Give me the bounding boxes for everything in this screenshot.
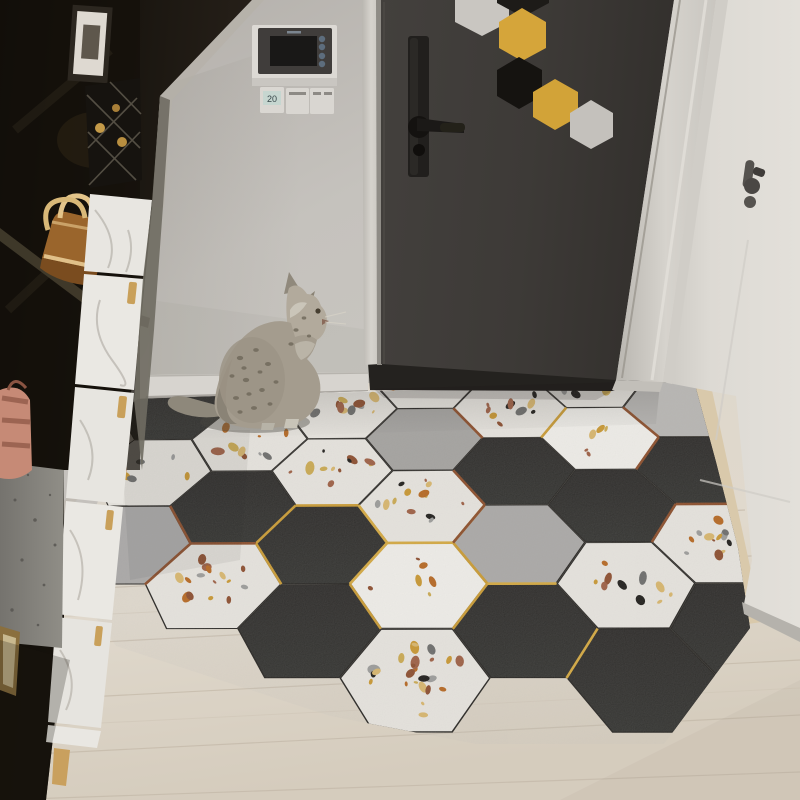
svg-text:20: 20	[267, 94, 277, 104]
